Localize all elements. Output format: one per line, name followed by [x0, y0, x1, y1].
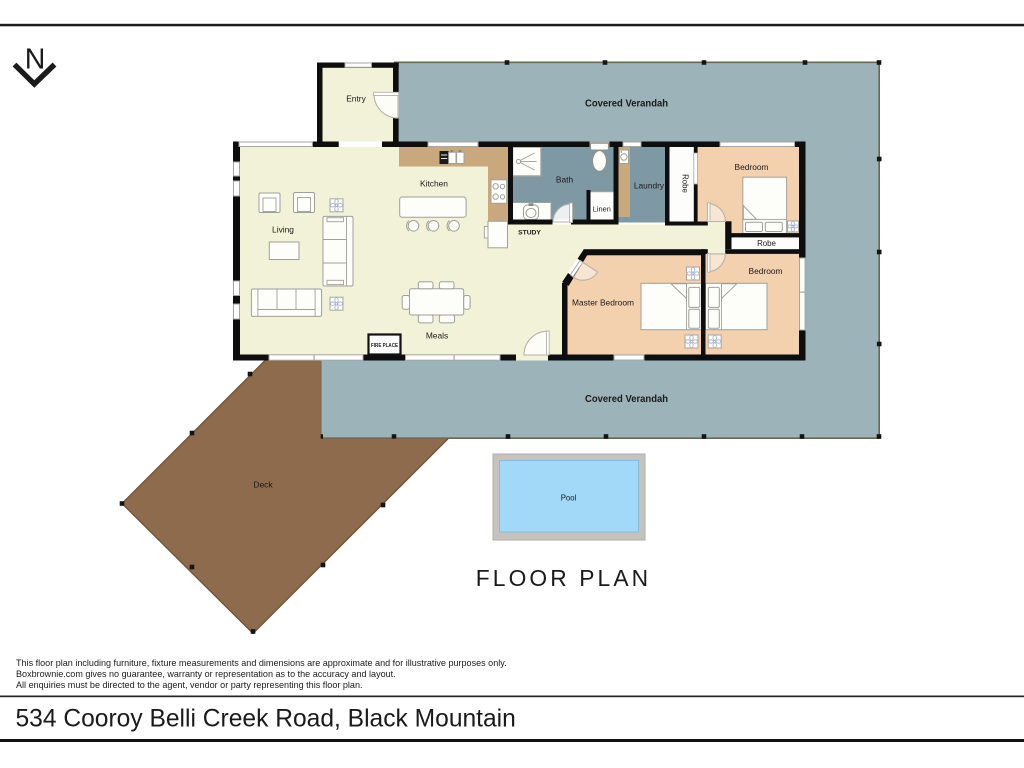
svg-text:Entry: Entry: [346, 94, 366, 104]
svg-text:Robe: Robe: [757, 239, 776, 248]
svg-text:Robe: Robe: [681, 174, 690, 193]
svg-text:All enquiries must be directed: All enquiries must be directed to the ag…: [16, 680, 363, 690]
svg-text:Covered Verandah: Covered Verandah: [585, 98, 668, 109]
svg-text:Deck: Deck: [253, 480, 273, 490]
svg-text:Boxbrownie.com gives no guaran: Boxbrownie.com gives no guarantee, warra…: [16, 669, 396, 679]
svg-text:STUDY: STUDY: [518, 230, 541, 237]
svg-text:Linen: Linen: [593, 205, 611, 214]
svg-text:Bedroom: Bedroom: [749, 266, 783, 276]
svg-text:Meals: Meals: [426, 331, 448, 341]
svg-text:Covered Verandah: Covered Verandah: [585, 394, 668, 405]
svg-text:Laundry: Laundry: [634, 180, 665, 190]
svg-text:N: N: [25, 44, 46, 76]
svg-text:Bedroom: Bedroom: [735, 162, 769, 172]
svg-text:FLOOR PLAN: FLOOR PLAN: [476, 565, 651, 591]
svg-text:FIRE PLACE: FIRE PLACE: [371, 343, 398, 349]
svg-text:Kitchen: Kitchen: [420, 178, 448, 188]
svg-text:This floor plan including furn: This floor plan including furniture, fix…: [16, 658, 507, 668]
svg-text:Living: Living: [272, 225, 294, 235]
svg-text:Bath: Bath: [556, 175, 574, 185]
svg-text:Pool: Pool: [561, 494, 577, 503]
svg-text:Master Bedroom: Master Bedroom: [572, 297, 634, 307]
svg-text:534 Cooroy Belli Creek Road, B: 534 Cooroy Belli Creek Road, Black Mount…: [16, 706, 516, 733]
